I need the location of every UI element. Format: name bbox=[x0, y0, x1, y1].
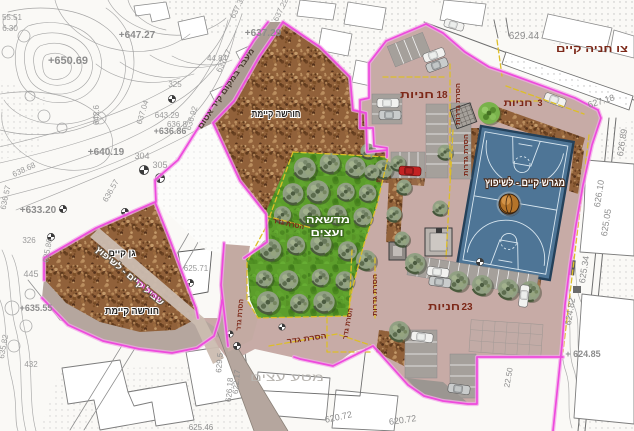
svg-text:326: 326 bbox=[22, 236, 36, 245]
svg-text:636.8: 636.8 bbox=[167, 120, 188, 129]
svg-text:625.71: 625.71 bbox=[184, 264, 209, 273]
svg-text:חניות: חניות bbox=[504, 98, 533, 108]
svg-text:+ 624.85: + 624.85 bbox=[565, 349, 600, 359]
svg-text:+633.20: +633.20 bbox=[20, 205, 57, 216]
svg-text:חורשה קיימת: חורשה קיימת bbox=[105, 306, 159, 317]
svg-text:18: 18 bbox=[436, 90, 448, 101]
svg-text:+650.69: +650.69 bbox=[48, 55, 88, 67]
svg-text:445: 445 bbox=[23, 269, 38, 279]
svg-text:+635.55: +635.55 bbox=[20, 303, 53, 313]
svg-text:625.46: 625.46 bbox=[189, 423, 214, 431]
svg-text:חניות: חניות bbox=[428, 302, 460, 313]
svg-text:6.30: 6.30 bbox=[2, 24, 18, 33]
svg-text:325: 325 bbox=[168, 80, 182, 89]
svg-text:+647.27: +647.27 bbox=[119, 30, 156, 41]
svg-text:23: 23 bbox=[461, 302, 473, 313]
svg-text:מגרש קיים - לשיפוץ: מגרש קיים - לשיפוץ bbox=[485, 177, 565, 189]
svg-text:ועצים: ועצים bbox=[311, 228, 344, 239]
svg-text:305: 305 bbox=[152, 160, 167, 170]
svg-text:הסרת גדרות: הסרת גדרות bbox=[455, 83, 462, 125]
svg-text:מטע עצים: מטע עצים bbox=[250, 372, 324, 384]
svg-text:מדשאה: מדשאה bbox=[306, 215, 350, 226]
svg-text:חורשה קיימת: חורשה קיימת bbox=[252, 109, 301, 120]
svg-text:צו חניה קיים: צו חניה קיים bbox=[556, 44, 628, 55]
svg-text:643.29: 643.29 bbox=[155, 111, 180, 120]
svg-text:הסרת גדרות: הסרת גדרות bbox=[372, 274, 379, 316]
svg-text:642.6: 642.6 bbox=[92, 104, 101, 125]
svg-text:+640.19: +640.19 bbox=[88, 147, 125, 158]
svg-text:חניות: חניות bbox=[400, 90, 434, 101]
svg-text:629.44: 629.44 bbox=[509, 31, 540, 42]
svg-text:3: 3 bbox=[537, 98, 542, 108]
svg-text:55.51: 55.51 bbox=[2, 13, 23, 22]
svg-text:304: 304 bbox=[134, 151, 149, 161]
svg-text:432: 432 bbox=[24, 360, 38, 369]
svg-text:629.5: 629.5 bbox=[214, 352, 225, 373]
svg-text:+637.29: +637.29 bbox=[245, 28, 282, 39]
svg-text:הסרת גדרות: הסרת גדרות bbox=[463, 134, 470, 176]
